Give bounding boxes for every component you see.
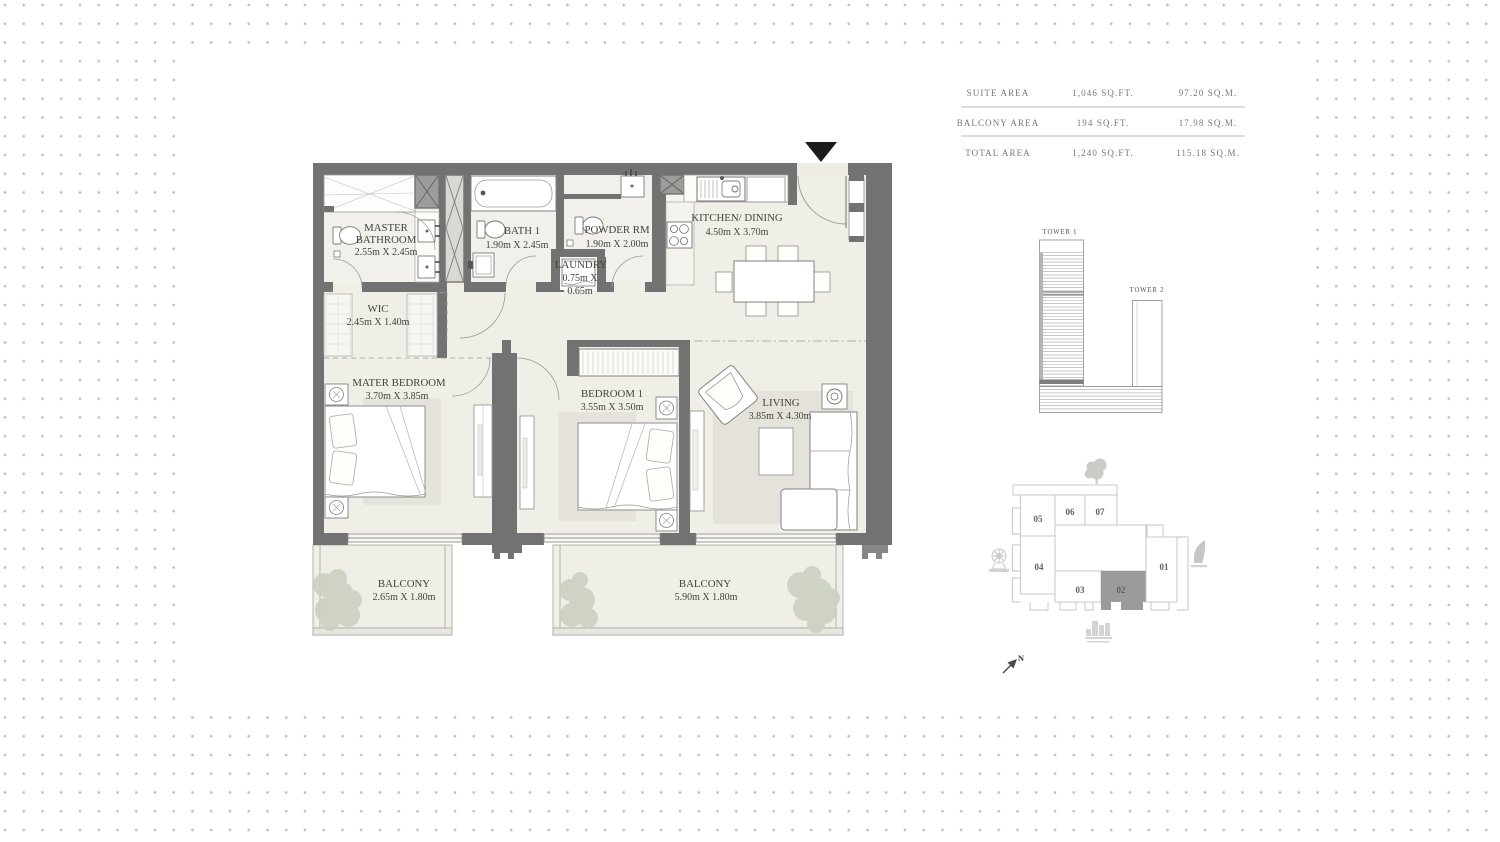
svg-text:TOWER 1: TOWER 1 [1043,229,1078,236]
svg-text:SUITE AREA: SUITE AREA [967,88,1030,98]
svg-text:194 SQ.FT.: 194 SQ.FT. [1077,118,1130,128]
svg-text:1,240 SQ.FT.: 1,240 SQ.FT. [1072,148,1134,158]
svg-text:07: 07 [1096,507,1106,517]
svg-text:TOWER 2: TOWER 2 [1130,287,1165,294]
svg-text:06: 06 [1066,507,1076,517]
svg-text:MATER BEDROOM: MATER BEDROOM [352,377,446,389]
svg-text:1.90m X 2.45m: 1.90m X 2.45m [486,240,549,251]
svg-text:LIVING: LIVING [762,397,799,409]
svg-text:01: 01 [1160,562,1170,572]
svg-text:BALCONY: BALCONY [378,578,430,590]
svg-text:BALCONY: BALCONY [679,578,731,590]
svg-text:4.50m X 3.70m: 4.50m X 3.70m [706,227,769,238]
svg-text:BATH 1: BATH 1 [504,225,540,237]
svg-text:115.18 SQ.M.: 115.18 SQ.M. [1176,148,1240,158]
svg-text:03: 03 [1076,585,1086,595]
svg-text:TOTAL AREA: TOTAL AREA [965,148,1031,158]
svg-text:97.20 SQ.M.: 97.20 SQ.M. [1179,88,1238,98]
svg-text:5.90m X 1.80m: 5.90m X 1.80m [675,592,738,603]
svg-text:04: 04 [1035,562,1045,572]
svg-text:KITCHEN/ DINING: KITCHEN/ DINING [691,212,783,224]
svg-text:MASTER: MASTER [364,222,409,234]
svg-text:LAUNDRY: LAUNDRY [555,259,607,271]
svg-text:BEDROOM 1: BEDROOM 1 [581,388,643,400]
svg-text:2.65m X 1.80m: 2.65m X 1.80m [373,592,436,603]
svg-text:2.45m X 1.40m: 2.45m X 1.40m [347,317,410,328]
svg-text:WIC: WIC [368,303,389,315]
svg-text:1,046 SQ.FT.: 1,046 SQ.FT. [1072,88,1134,98]
svg-text:2.55m X 2.45m: 2.55m X 2.45m [355,247,418,258]
svg-text:N: N [1018,653,1025,663]
svg-text:0.65m: 0.65m [567,286,593,297]
svg-text:POWDER RM: POWDER RM [584,224,649,236]
svg-text:BATHROOM: BATHROOM [356,234,417,246]
svg-text:3.55m X 3.50m: 3.55m X 3.50m [581,402,644,413]
svg-text:05: 05 [1034,514,1044,524]
svg-text:BALCONY AREA: BALCONY AREA [957,118,1040,128]
svg-text:1.90m X 2.00m: 1.90m X 2.00m [586,239,649,250]
svg-text:3.85m X 4.30m: 3.85m X 4.30m [749,411,812,422]
svg-text:17.98 SQ.M.: 17.98 SQ.M. [1179,118,1238,128]
svg-text:3.70m X 3.85m: 3.70m X 3.85m [366,391,429,402]
svg-text:0.75m X: 0.75m X [563,273,599,284]
svg-text:02: 02 [1117,585,1127,595]
